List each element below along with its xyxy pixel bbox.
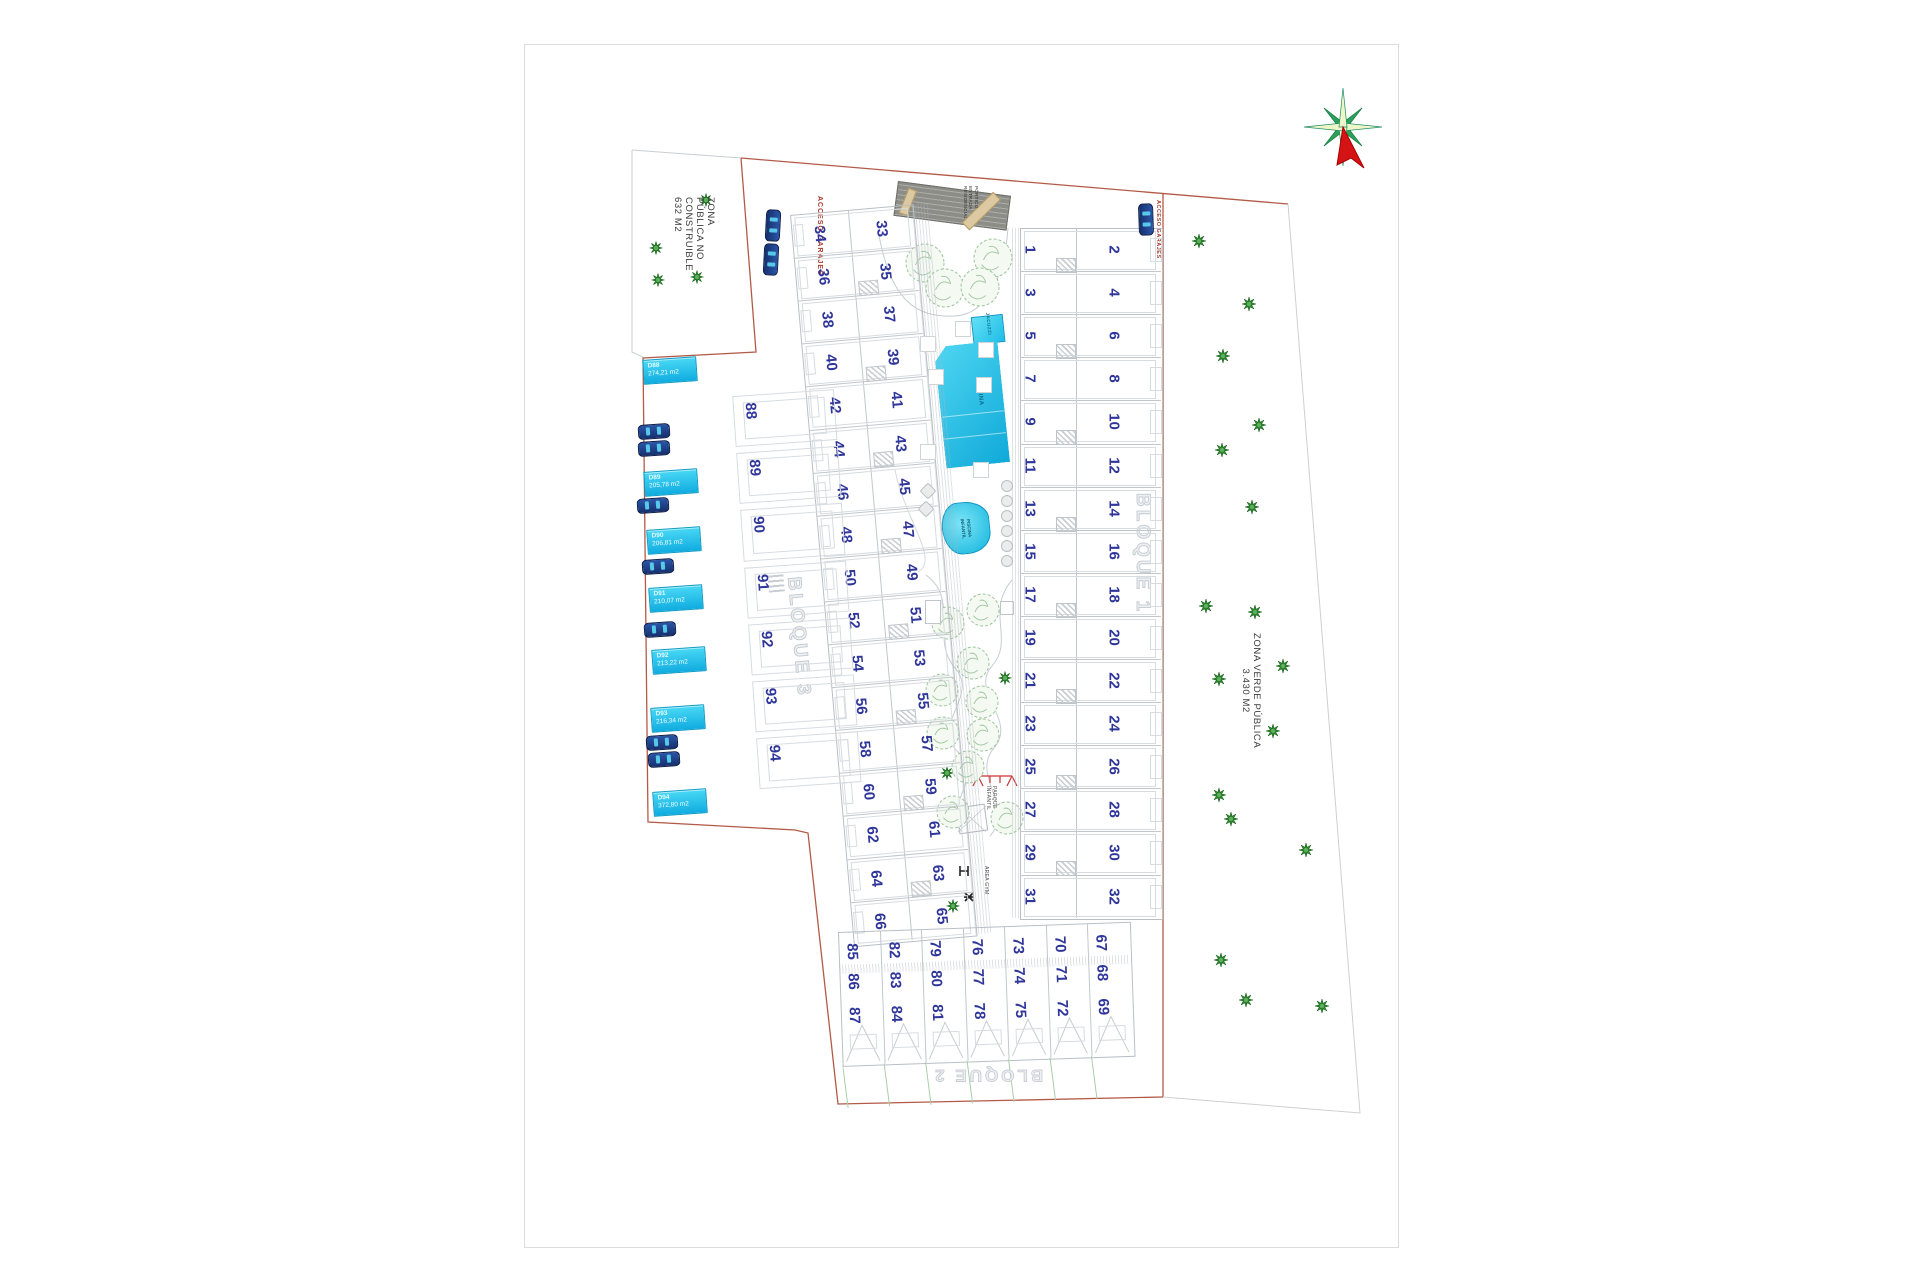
label-line: 632 M2 (672, 197, 683, 271)
pool-planter (973, 462, 989, 478)
plot-number: 90 (744, 514, 775, 536)
compass-point (1343, 123, 1382, 131)
plot-number: 67 (1087, 932, 1116, 953)
label-line: PÚBLICA NO (694, 197, 705, 271)
bloque2-label: BLOQUE 2 (913, 1065, 1043, 1085)
label-line: CONSTRUIBLE (683, 197, 694, 271)
terrace (1150, 497, 1162, 521)
area-chip: D91210,07 m2 (648, 584, 704, 613)
tree-icon (1204, 604, 1208, 608)
dormer (974, 1029, 1002, 1045)
plot-number: 36 (801, 265, 846, 289)
plot-divider (1020, 831, 1161, 832)
plot-number: 49 (889, 560, 934, 584)
plot-divider (1020, 875, 1161, 876)
plot-divider (1020, 702, 1161, 703)
zona-verde-label: ZONA VERDE PÚBLICA3.430 M2 (1240, 633, 1262, 748)
stair-hatch (1056, 258, 1076, 273)
parque-infantil-label: PARQUEINFANTIL (985, 786, 996, 810)
plot-number: 29 (1008, 843, 1051, 863)
plot-number: 53 (897, 646, 942, 670)
sun-lounger (1001, 540, 1013, 552)
bloque2-plots: 8586878283847980817677787374757071726768… (838, 922, 1135, 1110)
portico-label: PÓRTICOENTRADARESIDENCIAL (963, 186, 980, 219)
plot-number: 57 (904, 732, 949, 756)
garden-division-line (884, 1063, 889, 1106)
tree-icon (1271, 729, 1275, 733)
terrace (1150, 540, 1162, 564)
tree-icon (1220, 448, 1224, 452)
sun-lounger (1001, 555, 1013, 567)
car-icon (637, 497, 670, 514)
terrace (1150, 367, 1162, 391)
zona-publica-label: ZONAPÚBLICA NOCONSTRUIBLE632 M2 (672, 197, 716, 271)
plot-number: 77 (964, 967, 993, 988)
plot-number: 14 (1092, 498, 1135, 518)
sun-lounger (1001, 525, 1013, 537)
plot-number: 71 (1047, 964, 1076, 985)
plot-number: 40 (809, 351, 854, 375)
plot-number: 16 (1092, 541, 1135, 561)
plot-number: 18 (1092, 584, 1135, 604)
tree-icon (1217, 793, 1221, 797)
tree-icon (1244, 998, 1248, 1002)
plot-number: 5 (1008, 326, 1051, 346)
plot-number: 24 (1092, 714, 1135, 734)
area-chip: D93216,34 m2 (650, 704, 706, 733)
pool-planter (920, 444, 936, 460)
plot-number: 26 (1092, 757, 1135, 777)
plot-divider (1020, 444, 1161, 445)
plot-number: 78 (965, 1001, 994, 1022)
plot-number: 72 (1048, 998, 1077, 1019)
area-chip: D89205,78 m2 (643, 468, 699, 497)
plot-number: 76 (963, 937, 992, 958)
label-line: ZONA VERDE PÚBLICA (1251, 633, 1262, 748)
plot-number: 27 (1008, 800, 1051, 820)
plot-number: 79 (921, 938, 950, 959)
sun-lounger (1001, 495, 1013, 507)
pool-planter (955, 321, 971, 337)
pool-planter (978, 342, 994, 358)
pool-planter (928, 369, 944, 385)
area-chip: D90206,81 m2 (646, 526, 702, 555)
plot-number: 69 (1089, 996, 1118, 1017)
plot-number: 91 (748, 571, 779, 593)
tree-icon (1219, 958, 1223, 962)
car-icon (638, 440, 671, 457)
tree-icon (1221, 354, 1225, 358)
terrace (1150, 410, 1162, 434)
dormer (1098, 1025, 1126, 1041)
terrace (1150, 324, 1162, 348)
plot-number: 15 (1008, 541, 1051, 561)
kids-pool-label: PISCINAINFANTIL (959, 517, 972, 538)
terrace (1150, 798, 1162, 822)
sun-lounger (1001, 510, 1013, 522)
stair-hatch (1056, 517, 1076, 532)
stair-hatch (1056, 861, 1076, 876)
tree-icon (654, 246, 658, 250)
car-icon (1138, 203, 1154, 236)
car-icon (638, 423, 671, 440)
terrace (1150, 583, 1162, 607)
plot-number: 13 (1008, 498, 1051, 518)
plot-number: 19 (1008, 627, 1051, 647)
plot-number: 12 (1092, 455, 1135, 475)
plot-number: 9 (1008, 412, 1051, 432)
plot-number: 34 (797, 222, 842, 246)
car-icon (648, 751, 681, 768)
terrace (1150, 669, 1162, 693)
tree-icon (1320, 1004, 1324, 1008)
plot-divider (1020, 357, 1161, 358)
car-icon (765, 209, 782, 242)
stair-hatch (896, 709, 917, 726)
plot-divider (1020, 659, 1161, 660)
plot-number: 75 (1006, 999, 1035, 1020)
plot-divider (1020, 573, 1161, 574)
plot-number: 8 (1092, 369, 1135, 389)
parcel-boundary (741, 158, 1288, 204)
plot-number: 28 (1092, 800, 1135, 820)
plot-number: 11 (1008, 455, 1051, 475)
plot-number: 1 (1008, 240, 1051, 260)
stair-hatch (911, 881, 932, 898)
tree-icon (1257, 423, 1261, 427)
area-chip: D92213,22 m2 (651, 646, 707, 675)
terrace (1150, 454, 1162, 478)
area-chip: D94372,80 m2 (652, 788, 708, 817)
car-icon (763, 243, 780, 276)
plot-number: 20 (1092, 627, 1135, 647)
plot-number: 83 (881, 970, 910, 991)
stair-hatch (873, 451, 894, 468)
stair-hatch (1056, 775, 1076, 790)
plot-number: 4 (1092, 283, 1135, 303)
plot-number: 25 (1008, 757, 1051, 777)
plot-number: 22 (1092, 671, 1135, 691)
duplex-plots: 88899091929394 (706, 386, 866, 794)
plot-divider (1020, 400, 1161, 401)
plot-number: 74 (1005, 965, 1034, 986)
bloque1-plots: 1234567891011121314151617181920212223242… (1020, 228, 1163, 918)
terrace (1150, 626, 1162, 650)
site-plan-canvas: PÓRTICOENTRADARESIDENCIAL JACUZZI PISCIN… (0, 0, 1920, 1280)
plot-divider (1020, 788, 1161, 789)
stair-hatch (866, 365, 887, 382)
tree-icon (1304, 848, 1308, 852)
stair-hatch (858, 280, 879, 297)
dormer (1057, 1026, 1085, 1042)
dormer (1015, 1028, 1043, 1044)
tree-icon (1250, 505, 1254, 509)
plot-number: 85 (838, 941, 867, 962)
label-line: PÓRTICO (974, 186, 980, 219)
plot-number: 68 (1088, 962, 1117, 983)
plot-number: 32 (1092, 886, 1135, 906)
label-line: PARQUE (991, 786, 997, 810)
plot-number: 80 (922, 968, 951, 989)
tree-icon (967, 594, 999, 626)
area-chip: D88274,21 m2 (642, 356, 698, 385)
plot-number: 84 (882, 1004, 911, 1025)
terrace (1150, 281, 1162, 305)
plot-number: 6 (1092, 326, 1135, 346)
tree-icon (1281, 664, 1285, 668)
plot-number: 7 (1008, 369, 1051, 389)
label-line: ENTRADA (968, 186, 974, 219)
stair-hatch (1056, 430, 1076, 445)
plot-number: 23 (1008, 714, 1051, 734)
compass-point (1339, 88, 1347, 127)
stair-hatch (1056, 689, 1076, 704)
tree-icon (695, 275, 699, 279)
tree-icon (1247, 302, 1251, 306)
plot-number: 45 (882, 474, 927, 498)
car-icon (642, 558, 675, 575)
plot-divider (1020, 487, 1161, 488)
tree-icon (961, 268, 999, 306)
stair-hatch (1056, 603, 1076, 618)
sun-lounger (1001, 480, 1013, 492)
tree-icon (1197, 239, 1201, 243)
plot-number: 17 (1008, 584, 1051, 604)
plot-number: 93 (756, 685, 787, 707)
plot-divider (1020, 745, 1161, 746)
plot-number: 94 (759, 742, 790, 764)
car-icon (644, 621, 677, 638)
stair-hatch (881, 537, 902, 554)
plot-divider (1020, 616, 1161, 617)
tree-icon (656, 278, 660, 282)
plot-number: 82 (880, 940, 909, 961)
plot-number: 81 (924, 1002, 953, 1023)
plot-number: 21 (1008, 671, 1051, 691)
plot-divider (1020, 530, 1161, 531)
plot-number: 31 (1008, 886, 1051, 906)
garden-division-line (1050, 1058, 1055, 1101)
plot-number: 3 (1008, 283, 1051, 303)
tree-icon (1229, 817, 1233, 821)
label-line: ZONA (705, 197, 716, 271)
terrace (1150, 755, 1162, 779)
plot-number: 2 (1092, 240, 1135, 260)
plot-divider (1020, 271, 1161, 272)
dormer (891, 1032, 919, 1048)
plot-number: 92 (752, 628, 783, 650)
plot-number: 64 (854, 866, 899, 890)
stair-hatch (888, 623, 909, 640)
plot-number: 37 (867, 303, 912, 327)
plot-number: 30 (1092, 843, 1135, 863)
tree-icon (1217, 677, 1221, 681)
plot-number: 70 (1046, 934, 1075, 955)
plot-number: 65 (919, 904, 964, 928)
plot-number: 88 (736, 400, 767, 422)
plot-number: 87 (841, 1005, 870, 1026)
plot-divider (1020, 314, 1161, 315)
car-icon (646, 734, 679, 751)
label-line: RESIDENCIAL (963, 186, 969, 219)
garden-division-line (843, 1065, 848, 1108)
plot-number: 10 (1092, 412, 1135, 432)
compass-point (1304, 123, 1343, 131)
tree-icon (1003, 676, 1007, 680)
dormer (850, 1034, 878, 1050)
plot-number: 73 (1004, 935, 1033, 956)
stair-hatch (1056, 344, 1076, 359)
plot-number: 38 (805, 308, 850, 332)
plot-number: 86 (839, 971, 868, 992)
garden-division-line (1091, 1056, 1096, 1099)
plot-number: 33 (859, 217, 904, 241)
plot-number: 89 (740, 457, 771, 479)
terrace (1150, 238, 1162, 262)
tree-icon (1253, 610, 1257, 614)
terrace (1150, 712, 1162, 736)
pool-planter (976, 377, 992, 393)
dormer (933, 1031, 961, 1047)
terrace (1150, 885, 1162, 909)
terrace (1150, 841, 1162, 865)
pool-planter (920, 336, 936, 352)
stair-hatch (903, 795, 924, 812)
label-line: INFANTIL (985, 786, 991, 810)
label-line: 3.430 M2 (1240, 633, 1251, 748)
